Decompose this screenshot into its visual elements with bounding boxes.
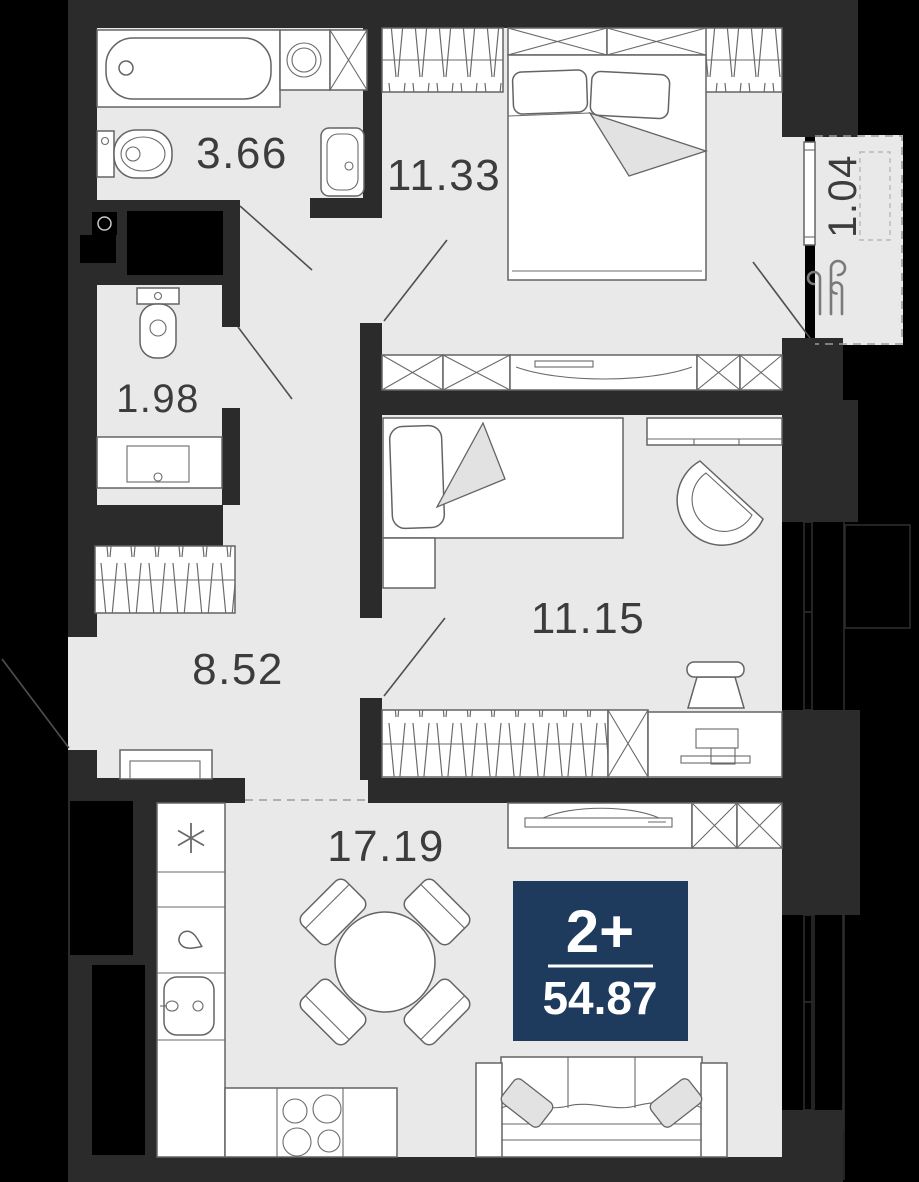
dining-table bbox=[335, 912, 435, 1012]
desk bbox=[648, 712, 782, 777]
shaft-box bbox=[330, 30, 367, 90]
washing-machine bbox=[280, 30, 330, 90]
sofa bbox=[476, 1057, 727, 1157]
desk-chair bbox=[687, 662, 744, 708]
kitchen-counter bbox=[157, 803, 225, 1157]
floorplan-drawing: 3.66 1.98 8.52 bbox=[0, 0, 919, 1182]
room-label-kids: 11.15 bbox=[531, 594, 645, 643]
badge-total-area: 54.87 bbox=[542, 972, 657, 1024]
nightstand bbox=[383, 538, 435, 588]
console-cabinet bbox=[120, 750, 212, 779]
overhead-cabinet bbox=[508, 28, 706, 55]
dresser-row bbox=[382, 355, 782, 390]
floorplan-page: 3.66 1.98 8.52 bbox=[0, 0, 919, 1182]
window bbox=[804, 142, 815, 245]
toilet bbox=[97, 130, 172, 178]
dresser bbox=[510, 355, 697, 390]
room-label-hallway: 8.52 bbox=[192, 645, 284, 694]
vanity-counter bbox=[97, 437, 222, 488]
stove-counter bbox=[225, 1088, 397, 1157]
wall-shelf bbox=[647, 418, 782, 445]
double-bed bbox=[508, 55, 706, 280]
room-label-bathroom: 3.66 bbox=[196, 129, 288, 178]
room-label-wc: 1.98 bbox=[116, 377, 200, 421]
badge-rooms-label: 2+ bbox=[566, 898, 634, 965]
closet bbox=[95, 546, 235, 613]
single-bed bbox=[383, 418, 623, 538]
unit-badge: 2+ 54.87 bbox=[513, 881, 688, 1041]
sink bbox=[321, 128, 364, 196]
wardrobe bbox=[382, 710, 648, 777]
tv-stand bbox=[508, 803, 782, 848]
kitchen-sink bbox=[160, 977, 214, 1035]
toilet bbox=[137, 288, 179, 358]
room-label-kitchen-living: 17.19 bbox=[327, 822, 445, 871]
room-label-balcony: 1.04 bbox=[821, 154, 865, 238]
room-label-bedroom: 11.33 bbox=[387, 151, 501, 200]
